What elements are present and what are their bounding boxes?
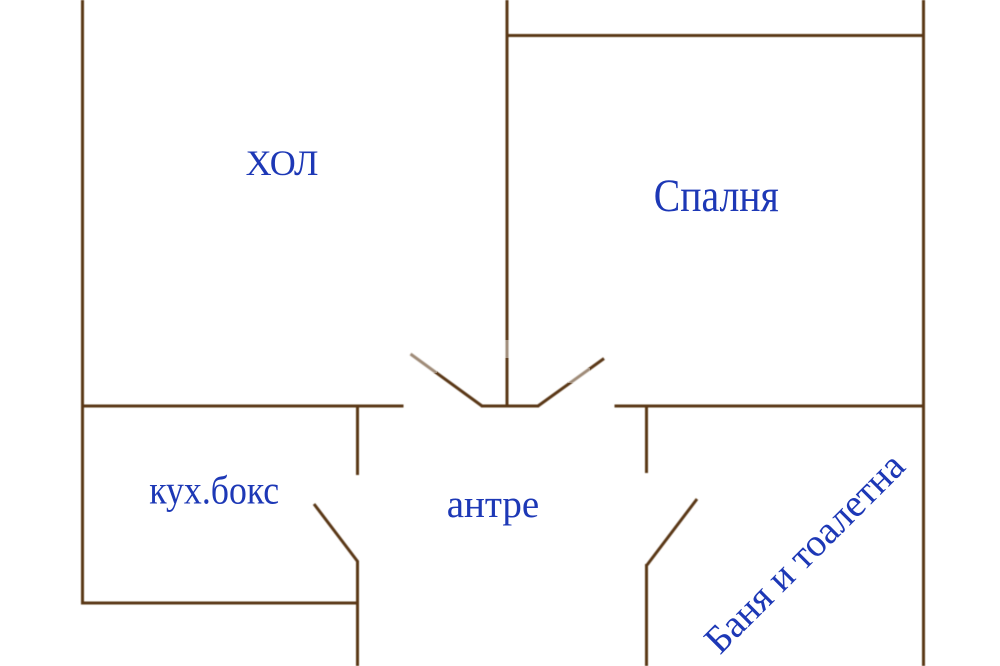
svg-text:ХОЛ: ХОЛ	[246, 143, 319, 183]
svg-text:Спалня: Спалня	[654, 170, 779, 222]
svg-text:антре: антре	[447, 483, 540, 526]
svg-text:Баня и тоалетна: Баня и тоалетна	[696, 444, 913, 661]
svg-text:кух.бокс: кух.бокс	[149, 468, 279, 513]
